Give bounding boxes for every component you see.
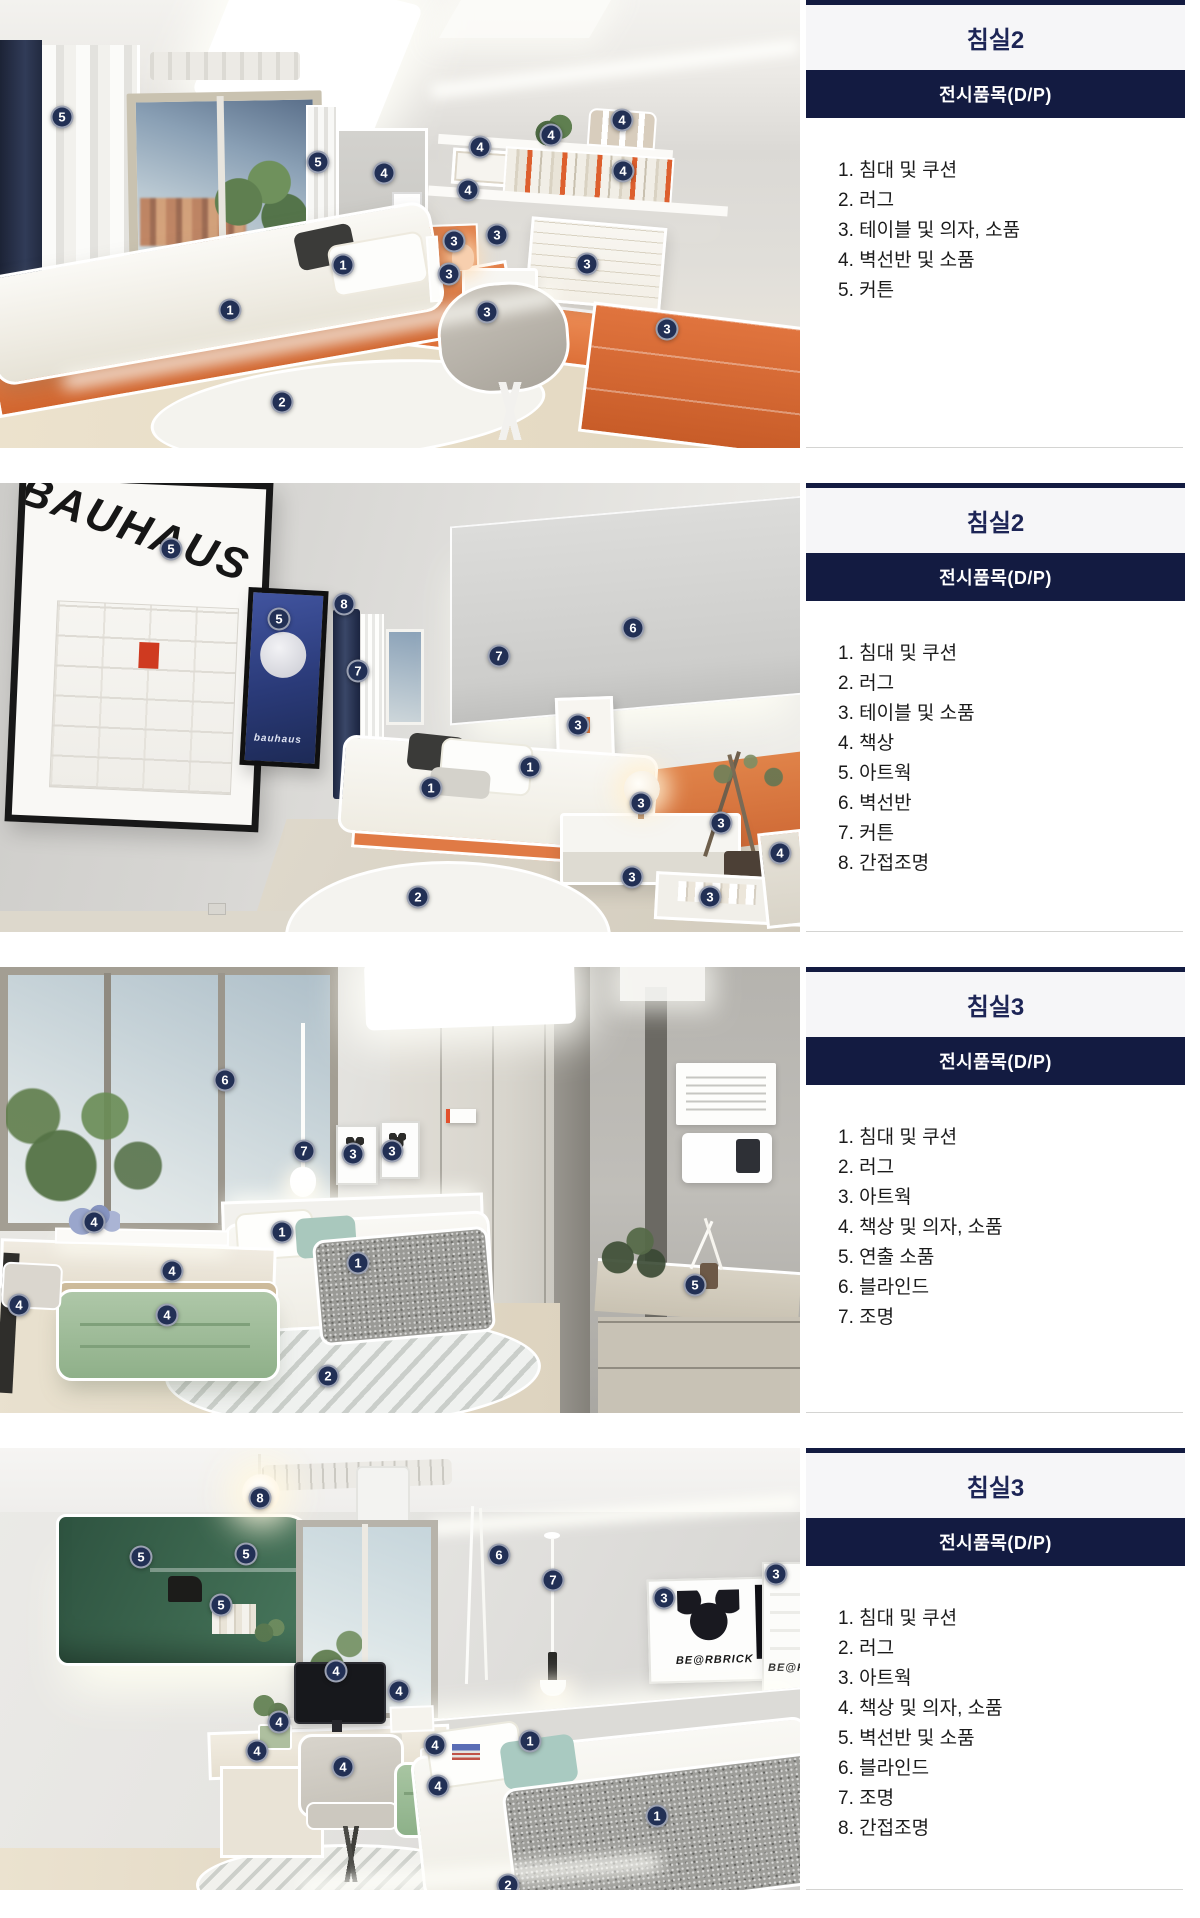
room-title: 침실3 xyxy=(806,967,1185,1037)
display-item: 1. 침대 및 쿠션 xyxy=(838,156,1175,186)
item-marker: 5 xyxy=(51,106,74,129)
item-marker: 3 xyxy=(567,714,590,737)
item-marker: 4 xyxy=(8,1294,31,1317)
display-items-header: 전시품목(D/P) xyxy=(806,553,1185,601)
display-item: 6. 블라인드 xyxy=(838,1754,1175,1784)
item-marker: 1 xyxy=(519,1730,542,1753)
marker-layer: 673341144425 xyxy=(0,967,800,1413)
marker-number: 7 xyxy=(300,1144,307,1159)
marker-number: 5 xyxy=(137,1550,144,1565)
marker-number: 1 xyxy=(526,1734,533,1749)
room-section-1: 55444444333333112 침실2 전시품목(D/P) 1. 침대 및 … xyxy=(0,0,1200,448)
display-item: 3. 테이블 및 의자, 소품 xyxy=(838,216,1175,246)
marker-number: 3 xyxy=(637,796,644,811)
marker-number: 4 xyxy=(776,846,783,861)
marker-number: 1 xyxy=(339,258,346,273)
marker-number: 5 xyxy=(242,1547,249,1562)
item-marker: 3 xyxy=(653,1587,676,1610)
item-marker: 2 xyxy=(407,886,430,909)
item-marker: 4 xyxy=(457,179,480,202)
room-section-2: BAUHAUS bauhaus xyxy=(0,483,1200,932)
display-item: 8. 간접조명 xyxy=(838,849,1175,879)
marker-layer: 558776311334332 xyxy=(0,483,800,932)
marker-number: 3 xyxy=(388,1144,395,1159)
display-item: 1. 침대 및 쿠션 xyxy=(838,639,1175,669)
marker-number: 3 xyxy=(628,870,635,885)
marker-number: 1 xyxy=(526,760,533,775)
item-marker: 3 xyxy=(381,1140,404,1163)
display-item: 4. 책상 및 의자, 소품 xyxy=(838,1213,1175,1243)
item-marker: 1 xyxy=(219,299,242,322)
item-marker: 4 xyxy=(161,1260,184,1283)
item-marker: 4 xyxy=(332,1756,355,1779)
item-marker: 1 xyxy=(420,777,443,800)
model-house-display-page: 55444444333333112 침실2 전시품목(D/P) 1. 침대 및 … xyxy=(0,0,1200,1890)
item-marker: 1 xyxy=(332,254,355,277)
display-item: 2. 러그 xyxy=(838,186,1175,216)
display-items-list: 1. 침대 및 쿠션2. 러그3. 테이블 및 의자, 소품4. 벽선반 및 소… xyxy=(806,118,1185,306)
item-marker: 5 xyxy=(210,1594,233,1617)
display-item: 4. 벽선반 및 소품 xyxy=(838,246,1175,276)
item-marker: 4 xyxy=(246,1740,269,1763)
display-item: 5. 연출 소품 xyxy=(838,1243,1175,1273)
display-item: 5. 벽선반 및 소품 xyxy=(838,1724,1175,1754)
marker-number: 4 xyxy=(619,164,626,179)
display-item: 2. 러그 xyxy=(838,669,1175,699)
display-item: 3. 테이블 및 소품 xyxy=(838,699,1175,729)
marker-number: 3 xyxy=(772,1567,779,1582)
item-marker: 3 xyxy=(438,263,461,286)
item-marker: 4 xyxy=(424,1734,447,1757)
item-marker: 4 xyxy=(612,160,635,183)
item-marker: 3 xyxy=(710,812,733,835)
item-marker: 7 xyxy=(542,1569,565,1592)
room-title: 침실2 xyxy=(806,483,1185,553)
item-marker: 7 xyxy=(347,660,370,683)
marker-number: 4 xyxy=(547,128,554,143)
item-marker: 5 xyxy=(268,608,291,631)
item-marker: 4 xyxy=(469,136,492,159)
display-item: 6. 블라인드 xyxy=(838,1273,1175,1303)
marker-number: 1 xyxy=(278,1225,285,1240)
marker-number: 4 xyxy=(168,1264,175,1279)
marker-number: 4 xyxy=(618,113,625,128)
room-section-4: BE@RBRICK BE@RBRICK xyxy=(0,1448,1200,1890)
marker-number: 4 xyxy=(464,183,471,198)
marker-number: 5 xyxy=(58,110,65,125)
marker-number: 4 xyxy=(380,166,387,181)
display-items-list: 1. 침대 및 쿠션2. 러그3. 아트웍4. 책상 및 의자, 소품5. 연출… xyxy=(806,1085,1185,1333)
marker-number: 4 xyxy=(434,1779,441,1794)
item-marker: 4 xyxy=(325,1660,348,1683)
room-section-3: 673341144425 침실3 전시품목(D/P) 1. 침대 및 쿠션2. … xyxy=(0,967,1200,1413)
marker-number: 6 xyxy=(495,1548,502,1563)
display-item: 7. 커튼 xyxy=(838,819,1175,849)
marker-number: 4 xyxy=(15,1298,22,1313)
display-items-header: 전시품목(D/P) xyxy=(806,1037,1185,1085)
item-marker: 3 xyxy=(765,1563,788,1586)
marker-number: 4 xyxy=(90,1215,97,1230)
marker-number: 4 xyxy=(395,1684,402,1699)
item-marker: 4 xyxy=(540,124,563,147)
display-item: 2. 러그 xyxy=(838,1634,1175,1664)
item-marker: 5 xyxy=(235,1543,258,1566)
item-marker: 2 xyxy=(497,1874,520,1891)
info-panel-4: 침실3 전시품목(D/P) 1. 침대 및 쿠션2. 러그3. 아트웍4. 책상… xyxy=(806,1448,1185,1844)
marker-number: 6 xyxy=(629,621,636,636)
item-marker: 2 xyxy=(271,391,294,414)
marker-number: 2 xyxy=(324,1369,331,1384)
marker-number: 2 xyxy=(504,1878,511,1891)
display-item: 5. 커튼 xyxy=(838,276,1175,306)
item-marker: 6 xyxy=(622,617,645,640)
marker-number: 1 xyxy=(226,303,233,318)
marker-number: 3 xyxy=(450,234,457,249)
display-items-list: 1. 침대 및 쿠션2. 러그3. 아트웍4. 책상 및 의자, 소품5. 벽선… xyxy=(806,1566,1185,1844)
marker-number: 4 xyxy=(476,140,483,155)
item-marker: 4 xyxy=(268,1711,291,1734)
item-marker: 8 xyxy=(333,593,356,616)
item-marker: 5 xyxy=(684,1274,707,1297)
item-marker: 4 xyxy=(83,1211,106,1234)
display-item: 1. 침대 및 쿠션 xyxy=(838,1604,1175,1634)
marker-number: 3 xyxy=(660,1591,667,1606)
display-item: 6. 벽선반 xyxy=(838,789,1175,819)
display-item: 4. 책상 xyxy=(838,729,1175,759)
display-items-header: 전시품목(D/P) xyxy=(806,1518,1185,1566)
item-marker: 8 xyxy=(249,1487,272,1510)
room-title: 침실2 xyxy=(806,0,1185,70)
item-marker: 3 xyxy=(443,230,466,253)
display-item: 4. 책상 및 의자, 소품 xyxy=(838,1694,1175,1724)
item-marker: 3 xyxy=(621,866,644,889)
item-marker: 7 xyxy=(293,1140,316,1163)
marker-number: 8 xyxy=(340,597,347,612)
display-item: 7. 조명 xyxy=(838,1784,1175,1814)
item-marker: 5 xyxy=(307,151,330,174)
marker-number: 4 xyxy=(431,1738,438,1753)
item-marker: 3 xyxy=(342,1143,365,1166)
marker-number: 3 xyxy=(663,322,670,337)
item-marker: 3 xyxy=(630,792,653,815)
item-marker: 7 xyxy=(488,645,511,668)
marker-number: 7 xyxy=(549,1573,556,1588)
item-marker: 6 xyxy=(488,1544,511,1567)
item-marker: 3 xyxy=(656,318,679,341)
item-marker: 4 xyxy=(388,1680,411,1703)
display-items-header: 전시품목(D/P) xyxy=(806,70,1185,118)
marker-number: 3 xyxy=(445,267,452,282)
info-panel-1: 침실2 전시품목(D/P) 1. 침대 및 쿠션2. 러그3. 테이블 및 의자… xyxy=(806,0,1185,306)
item-marker: 3 xyxy=(576,253,599,276)
marker-number: 5 xyxy=(314,155,321,170)
marker-number: 5 xyxy=(275,612,282,627)
display-item: 1. 침대 및 쿠션 xyxy=(838,1123,1175,1153)
marker-layer: 855567334444444112 xyxy=(0,1448,800,1890)
marker-number: 3 xyxy=(349,1147,356,1162)
marker-number: 3 xyxy=(717,816,724,831)
marker-number: 5 xyxy=(167,542,174,557)
marker-number: 1 xyxy=(653,1809,660,1824)
item-marker: 3 xyxy=(476,301,499,324)
item-marker: 3 xyxy=(699,886,722,909)
marker-number: 3 xyxy=(574,718,581,733)
marker-number: 6 xyxy=(221,1073,228,1088)
display-item: 7. 조명 xyxy=(838,1303,1175,1333)
marker-number: 5 xyxy=(691,1278,698,1293)
marker-number: 8 xyxy=(256,1491,263,1506)
marker-number: 7 xyxy=(354,664,361,679)
item-marker: 5 xyxy=(160,538,183,561)
room-title: 침실3 xyxy=(806,1448,1185,1518)
item-marker: 2 xyxy=(317,1365,340,1388)
marker-number: 3 xyxy=(583,257,590,272)
item-marker: 4 xyxy=(769,842,792,865)
marker-number: 4 xyxy=(339,1760,346,1775)
room-photo-bedroom3-a: 673341144425 xyxy=(0,967,800,1413)
marker-number: 4 xyxy=(253,1744,260,1759)
display-item: 3. 아트웍 xyxy=(838,1183,1175,1213)
marker-number: 1 xyxy=(427,781,434,796)
item-marker: 1 xyxy=(271,1221,294,1244)
item-marker: 4 xyxy=(611,109,634,132)
marker-number: 2 xyxy=(414,890,421,905)
marker-number: 3 xyxy=(483,305,490,320)
marker-number: 4 xyxy=(332,1664,339,1679)
marker-number: 1 xyxy=(354,1256,361,1271)
info-panel-3: 침실3 전시품목(D/P) 1. 침대 및 쿠션2. 러그3. 아트웍4. 책상… xyxy=(806,967,1185,1333)
item-marker: 1 xyxy=(519,756,542,779)
marker-number: 5 xyxy=(217,1598,224,1613)
item-marker: 6 xyxy=(214,1069,237,1092)
item-marker: 4 xyxy=(427,1775,450,1798)
room-photo-bedroom3-b: BE@RBRICK BE@RBRICK xyxy=(0,1448,800,1890)
display-item: 3. 아트웍 xyxy=(838,1664,1175,1694)
item-marker: 4 xyxy=(373,162,396,185)
marker-number: 7 xyxy=(495,649,502,664)
marker-number: 3 xyxy=(493,228,500,243)
room-photo-bedroom2-a: 55444444333333112 xyxy=(0,0,800,448)
item-marker: 1 xyxy=(347,1252,370,1275)
item-marker: 1 xyxy=(646,1805,669,1828)
marker-number: 4 xyxy=(163,1308,170,1323)
marker-layer: 55444444333333112 xyxy=(0,0,800,448)
room-photo-bedroom2-b: BAUHAUS bauhaus xyxy=(0,483,800,932)
info-panel-2: 침실2 전시품목(D/P) 1. 침대 및 쿠션2. 러그3. 테이블 및 소품… xyxy=(806,483,1185,879)
item-marker: 3 xyxy=(486,224,509,247)
item-marker: 4 xyxy=(156,1304,179,1327)
marker-number: 2 xyxy=(278,395,285,410)
marker-number: 3 xyxy=(706,890,713,905)
item-marker: 5 xyxy=(130,1546,153,1569)
marker-number: 4 xyxy=(275,1715,282,1730)
display-item: 5. 아트웍 xyxy=(838,759,1175,789)
display-item: 8. 간접조명 xyxy=(838,1814,1175,1844)
display-item: 2. 러그 xyxy=(838,1153,1175,1183)
display-items-list: 1. 침대 및 쿠션2. 러그3. 테이블 및 소품4. 책상5. 아트웍6. … xyxy=(806,601,1185,879)
